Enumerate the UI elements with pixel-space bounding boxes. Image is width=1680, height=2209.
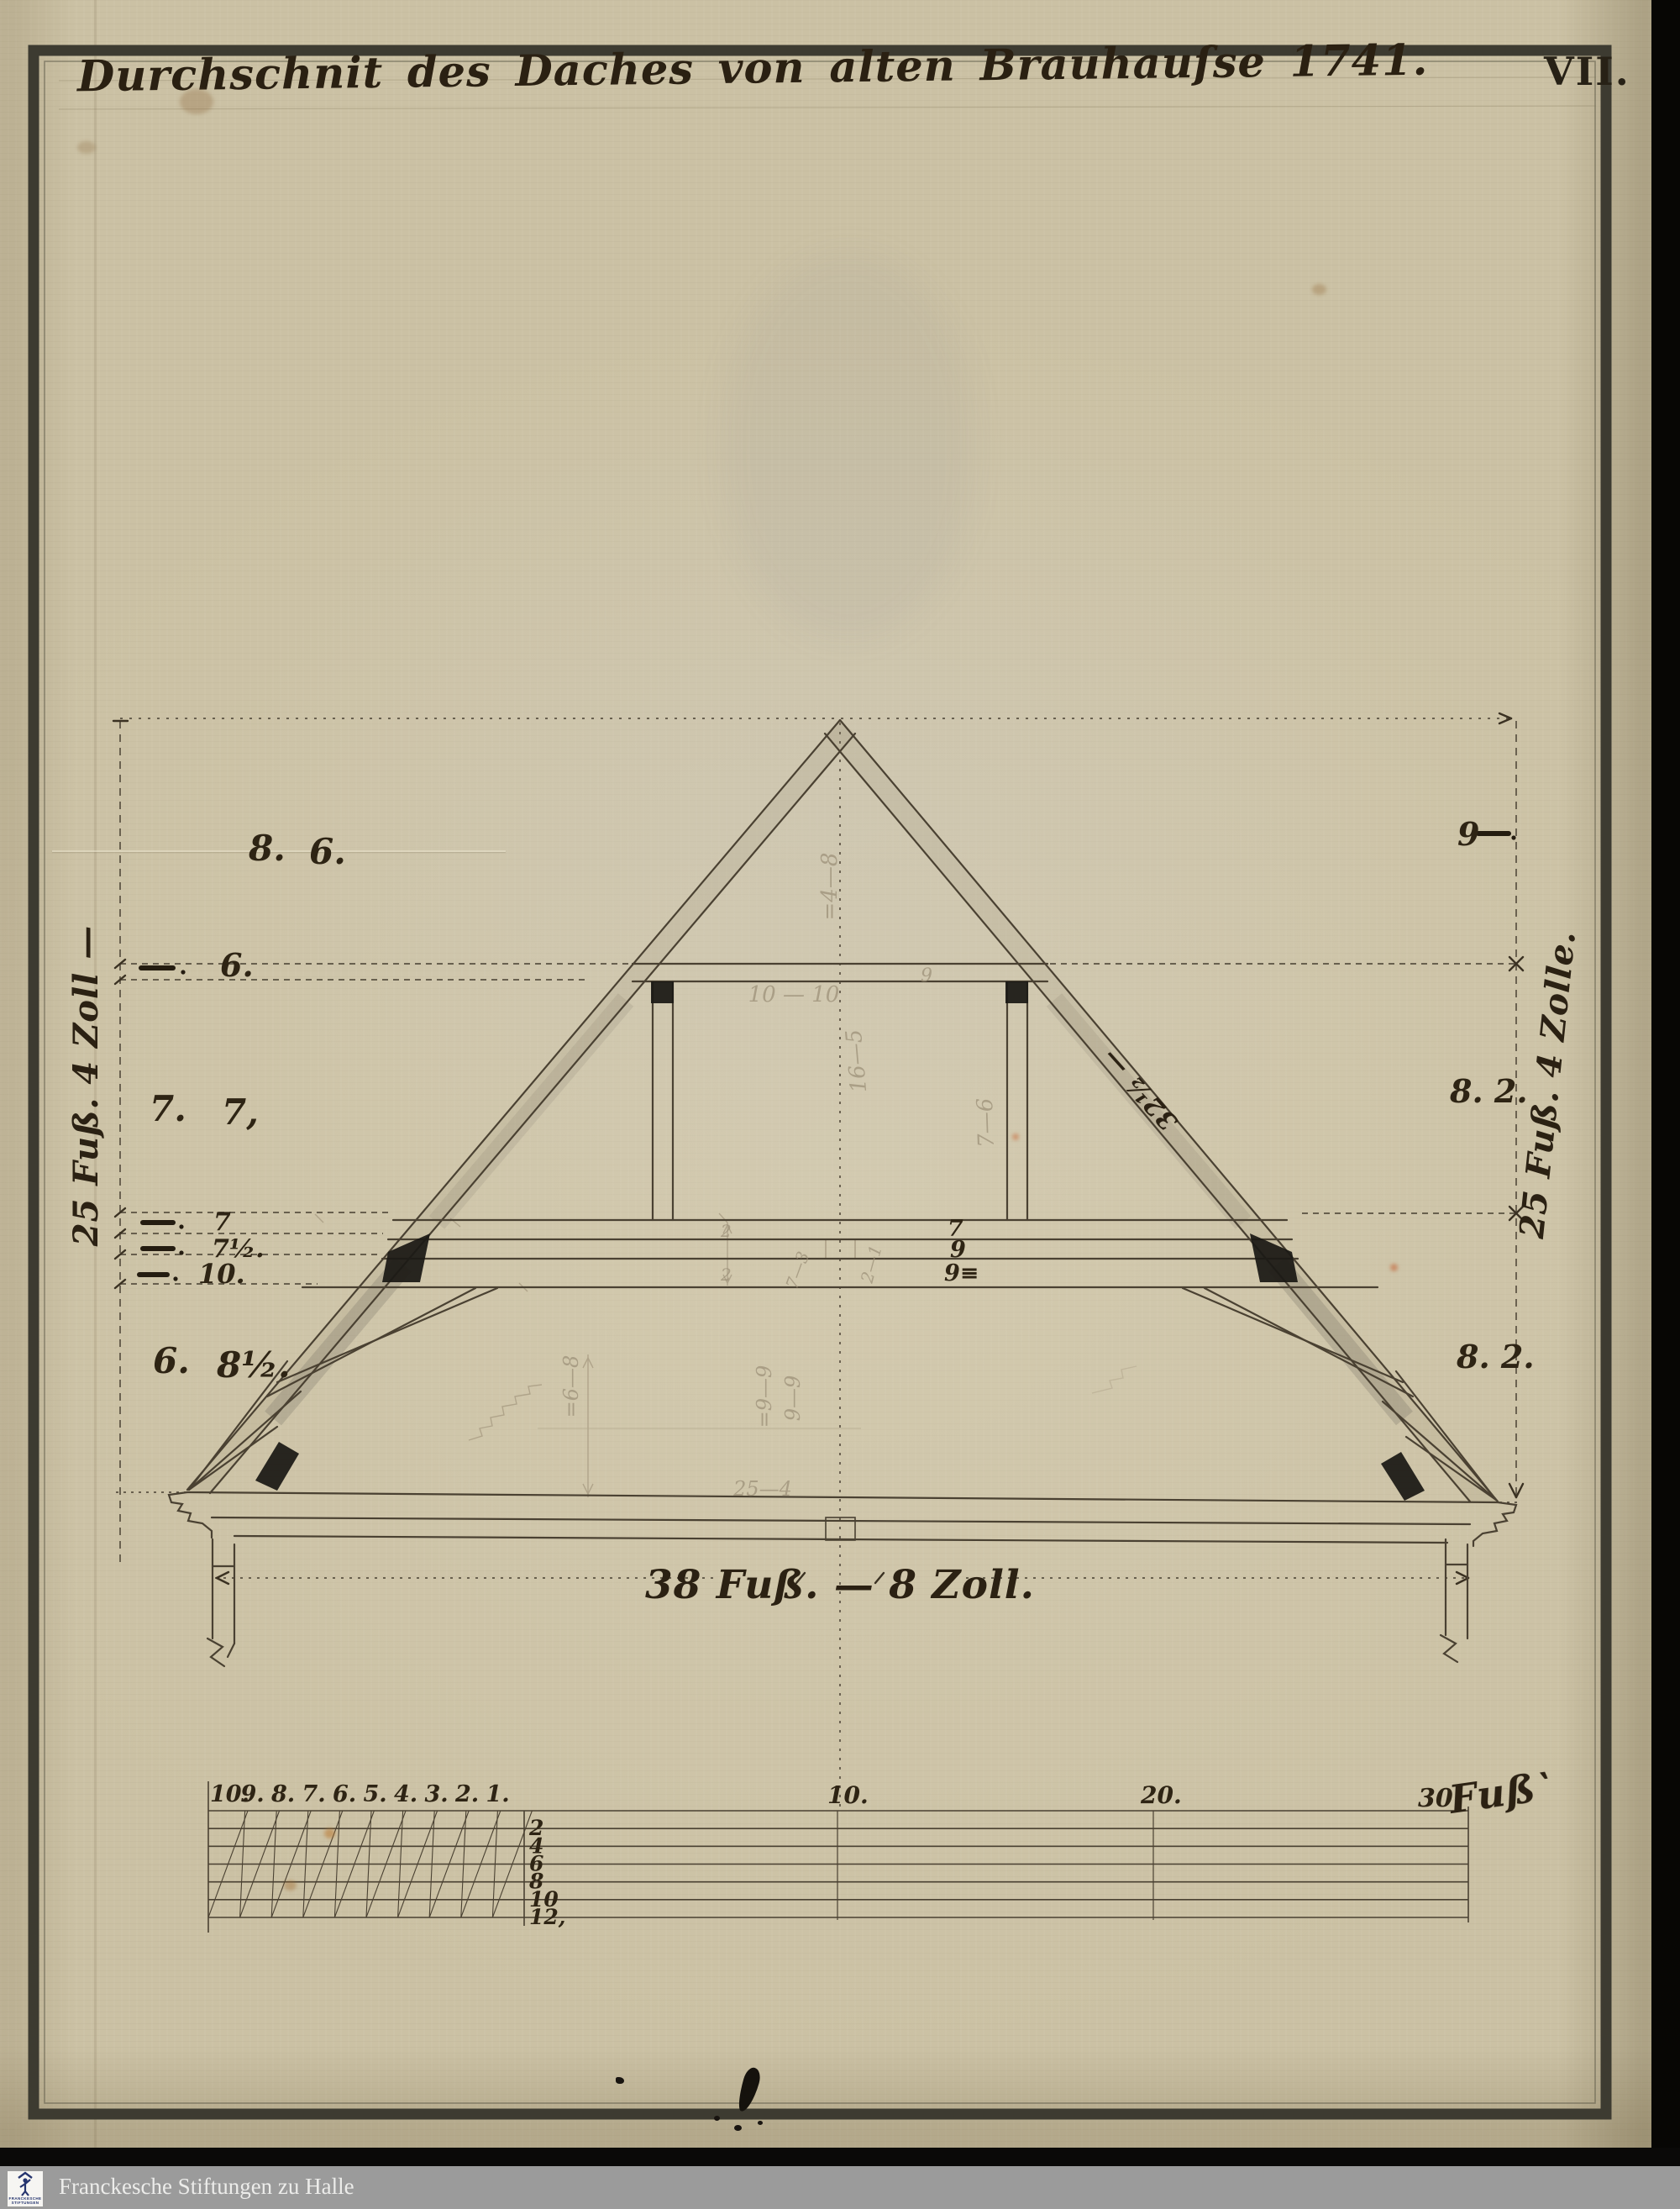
- paper-stain: [1012, 1133, 1019, 1140]
- wall-plate-top: [187, 1492, 1498, 1502]
- measurement-label: 25—4: [732, 1477, 792, 1501]
- paper-stain: [324, 1828, 335, 1838]
- measurement-label: 8. 2.: [1449, 1072, 1528, 1110]
- scale-tick-label: 9.: [241, 1781, 265, 1807]
- measurement-label: 7—3: [781, 1249, 813, 1291]
- footer-caption: Franckesche Stiftungen zu Halle: [59, 2174, 354, 2200]
- left-cornice-profile: [169, 1492, 212, 1538]
- franckesche-stiftungen-logo: FRANCKESCHE STIFTUNGEN: [8, 2171, 43, 2206]
- measurement-label: 25 Fuß. 4 Zoll —: [66, 925, 106, 1248]
- truss-linework: [169, 720, 1516, 1666]
- measurement-label: 38 Fuß. — 8 Zoll.: [645, 1562, 1035, 1608]
- paper-sheet: 8.6.6.7.7,77½.10.6.8½.25 Fuß. 4 Zoll —98…: [0, 0, 1651, 2148]
- scale-tick-label: 5.: [364, 1781, 387, 1807]
- scale-tick-label: 8.: [270, 1781, 295, 1807]
- measurement-label: 9: [1457, 815, 1479, 853]
- measurement-label: 8. 2.: [1456, 1338, 1535, 1375]
- logo-figure-icon: [8, 2171, 43, 2196]
- plate-frame: [34, 50, 1606, 2114]
- measurement-label: 2—1: [857, 1243, 886, 1286]
- ink-speck: [734, 2125, 742, 2131]
- measurement-label: 6.: [220, 946, 254, 984]
- right-cornice-profile: [1473, 1502, 1516, 1546]
- measurement-label: 10.: [198, 1258, 245, 1290]
- measurement-label: 9—9: [781, 1375, 805, 1422]
- measurement-label: 6.: [153, 1340, 190, 1381]
- rafter-shading: [187, 720, 1498, 1502]
- scale-row-label: 12,: [529, 1905, 566, 1929]
- construction-lines: [116, 718, 1517, 1812]
- scale-tick-label: 2.: [454, 1781, 479, 1807]
- scan-bottom-edge: [0, 2148, 1680, 2166]
- ink-speck: [616, 2077, 624, 2084]
- scale-tick-label: 1.: [486, 1781, 510, 1807]
- paper-stain: [180, 89, 213, 114]
- measurement-label: 6.: [309, 831, 346, 872]
- measurement-label: 7: [213, 1207, 231, 1237]
- measurement-label: 9≡: [944, 1260, 979, 1286]
- scale-tick-label: 4.: [394, 1781, 417, 1807]
- measurement-label: 7—6: [973, 1097, 1000, 1148]
- measurement-label: 9: [950, 1237, 966, 1263]
- logo-caption-line2: STIFTUNGEN: [12, 2201, 39, 2205]
- ink-speck: [758, 2121, 763, 2125]
- scale-tick-label: 3.: [425, 1781, 449, 1807]
- measurement-label: 2: [720, 1265, 732, 1285]
- measurement-label: 9: [921, 965, 932, 986]
- ink-speck: [714, 2116, 720, 2121]
- paper-stain: [1390, 1264, 1398, 1271]
- scale-unit-label: Fuß‵: [1445, 1764, 1552, 1822]
- scale-tick-label: 10.: [827, 1781, 869, 1809]
- measurement-label: =9—9: [753, 1365, 776, 1428]
- measurement-label: =6—8: [559, 1355, 583, 1418]
- measurement-label: 7.: [150, 1088, 186, 1129]
- truss-section-drawing: 8.6.6.7.7,77½.10.6.8½.25 Fuß. 4 Zoll —98…: [0, 0, 1651, 2148]
- measurement-label: 7,: [222, 1091, 259, 1133]
- scale-tick-label: 20.: [1140, 1781, 1182, 1809]
- paper-stain: [1312, 284, 1326, 295]
- scale-tick-label: 7.: [302, 1781, 326, 1807]
- soffit-line: [234, 1536, 1447, 1543]
- plate-number: VII.: [1544, 49, 1630, 94]
- measurement-label: 10 — 10: [748, 982, 840, 1007]
- scale-tick-label: 6.: [333, 1781, 356, 1807]
- measurement-label: 8½.: [216, 1344, 291, 1386]
- measurement-label: 32½ —: [1095, 1043, 1184, 1136]
- footer-bar: FRANCKESCHE STIFTUNGEN Franckesche Stift…: [0, 2166, 1680, 2209]
- left-post-break: [207, 1638, 224, 1666]
- pencil-construction: [315, 1213, 1137, 1497]
- measurement-label: =4—8: [817, 853, 843, 921]
- measurement-label: 8.: [248, 828, 286, 869]
- wall-plate-bottom: [212, 1517, 1470, 1524]
- scanned-archival-drawing: { "plate": { "number": "VII.", "title": …: [0, 0, 1680, 2209]
- measurement-label: 2: [720, 1221, 732, 1241]
- right-post-break: [1441, 1635, 1457, 1662]
- paper-stain: [77, 141, 96, 154]
- measurement-label: 16—5: [842, 1028, 872, 1094]
- paper-stain: [284, 1880, 297, 1891]
